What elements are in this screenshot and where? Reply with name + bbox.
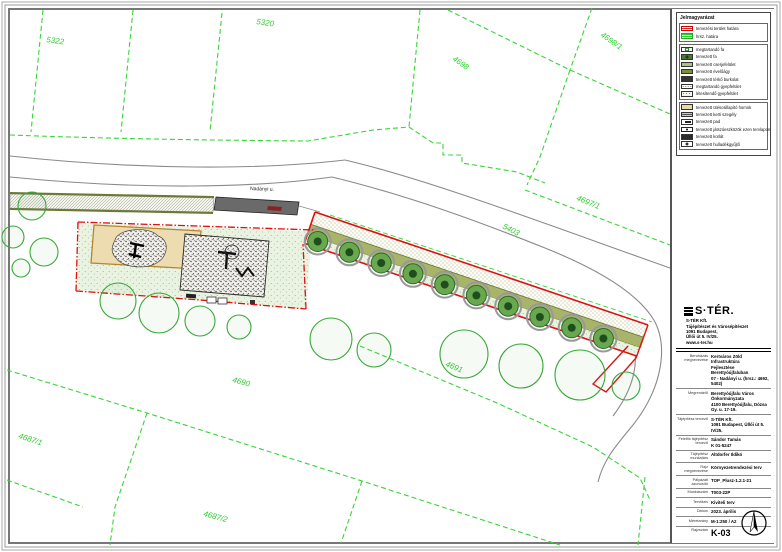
parcel-label: 4698/1 <box>599 30 624 51</box>
titleblock-row-project: Beruházás megnevezése Kertváros Zöld Inf… <box>676 352 771 389</box>
green-stripes-swatch <box>681 33 693 39</box>
legend-item: tervezett kerti szegély <box>681 111 766 118</box>
legend-item: tervezett cserjefelület <box>681 61 766 68</box>
litter-bin <box>250 300 255 304</box>
play-equipment-swatch <box>681 127 693 133</box>
legend-item: létesítendő gyepfelület <box>681 90 766 97</box>
road-number-label: 5403 <box>501 222 521 238</box>
perennial-swatch <box>681 69 693 75</box>
play-surface <box>180 234 269 297</box>
picnic-table <box>218 298 227 304</box>
litter-bin-swatch <box>681 141 693 147</box>
legend-item: tervezett korlát <box>681 133 766 140</box>
legend-item: tervezett térkő burkolat <box>681 75 766 82</box>
red-stripes-swatch <box>681 26 693 32</box>
legend-group-planting: megtartandó fa tervezett fa tervezett cs… <box>679 44 768 100</box>
planned-tree-swatch <box>681 54 693 60</box>
titleblock-row-phase: Tervfázis Kiviteli terv <box>676 498 771 508</box>
titleblock-row-grant-id: Pályázati azonosító TOP_Plusz-1.2.1-21 <box>676 476 771 489</box>
sand-swatch <box>681 104 693 110</box>
legend-item: tervezett hulladékgyűjtő <box>681 140 766 147</box>
titleblock-row-designer: Tájépítész tervező S-TÉR Kft. 1091 Budap… <box>676 415 771 436</box>
parcel-label: 4697/1 <box>575 194 601 212</box>
north-arrow-icon <box>739 508 769 538</box>
titleblock-row-collaborator: Tájépítész munkatárs Altdorfer Ildikó <box>676 451 771 464</box>
legend-item: tervezett játszóeszközök ezen tervlapon <box>681 126 766 133</box>
site-plan-map: 5322 5320 4698 4698/1 4697/1 5403 4691 4… <box>0 0 782 552</box>
grass-existing-swatch <box>681 84 693 90</box>
legend-group-boundaries: tervezési terület határa hrsz. határa <box>679 23 768 42</box>
paving-swatch <box>681 76 693 82</box>
road-top <box>10 156 345 186</box>
title-block: S·TÉR. S-TÉR Kft. Tájépítészet és Városé… <box>676 303 771 541</box>
grass-new-swatch <box>681 91 693 97</box>
bench-swatch <box>681 119 693 125</box>
parcel-label: 5320 <box>256 17 275 28</box>
titleblock-row-client: Megrendelő Berettyóújfalu Város Önkormán… <box>676 389 771 415</box>
legend-item: tervezett fa <box>681 53 766 60</box>
titleblock-row-lead-designer: Felelős tájépítész tervező Sándor Tamás … <box>676 436 771 451</box>
title-panel: Jelmagyarázat tervezési terület határa h… <box>670 9 774 543</box>
legend-item: megtartandó fa <box>681 46 766 53</box>
logo-text: S·TÉR. <box>695 305 734 317</box>
parcel-label: 5322 <box>46 35 65 46</box>
railing-swatch <box>681 134 693 140</box>
parcel-label: 4690 <box>231 375 251 388</box>
parcel-label: 4698 <box>451 54 471 72</box>
legend-item: tervezett ütéscsillapító homok <box>681 104 766 111</box>
street-name-label: Nadányi u. <box>250 186 274 193</box>
legend-item: hrsz. határa <box>681 32 766 39</box>
legend-item: tervezett pad <box>681 118 766 125</box>
legend-item: tervezett évelőágy <box>681 68 766 75</box>
edge-swatch <box>681 112 693 118</box>
company-contact: S-TÉR Kft. Tájépítészet és Városépítésze… <box>686 318 771 345</box>
parking-block <box>214 197 299 215</box>
logo-icon <box>684 307 693 316</box>
titleblock-row-drawing-title: Rajz megnevezése Környezetrendezési terv <box>676 463 771 476</box>
strip-walkway <box>311 212 648 337</box>
shrub-swatch <box>681 62 693 68</box>
parcel-label: 4687/1 <box>17 431 43 447</box>
legend-item: tervezési terület határa <box>681 25 766 32</box>
legend-item: megtartandó gyepfelület <box>681 83 766 90</box>
picnic-table <box>207 297 216 303</box>
legend: Jelmagyarázat tervezési terület határa h… <box>676 12 771 156</box>
parcel-label: 4687/2 <box>202 509 228 524</box>
titleblock-row-job-number: Munkaszám T003-22P <box>676 489 771 499</box>
bench <box>186 294 196 299</box>
pavement-band <box>10 193 320 215</box>
legend-title: Jelmagyarázat <box>680 15 768 21</box>
company-logo: S·TÉR. <box>684 305 771 317</box>
legend-group-furniture: tervezett ütéscsillapító homok tervezett… <box>679 102 768 150</box>
existing-tree-swatch <box>681 47 693 53</box>
plan-sheet: 5322 5320 4698 4698/1 4697/1 5403 4691 4… <box>0 0 782 552</box>
